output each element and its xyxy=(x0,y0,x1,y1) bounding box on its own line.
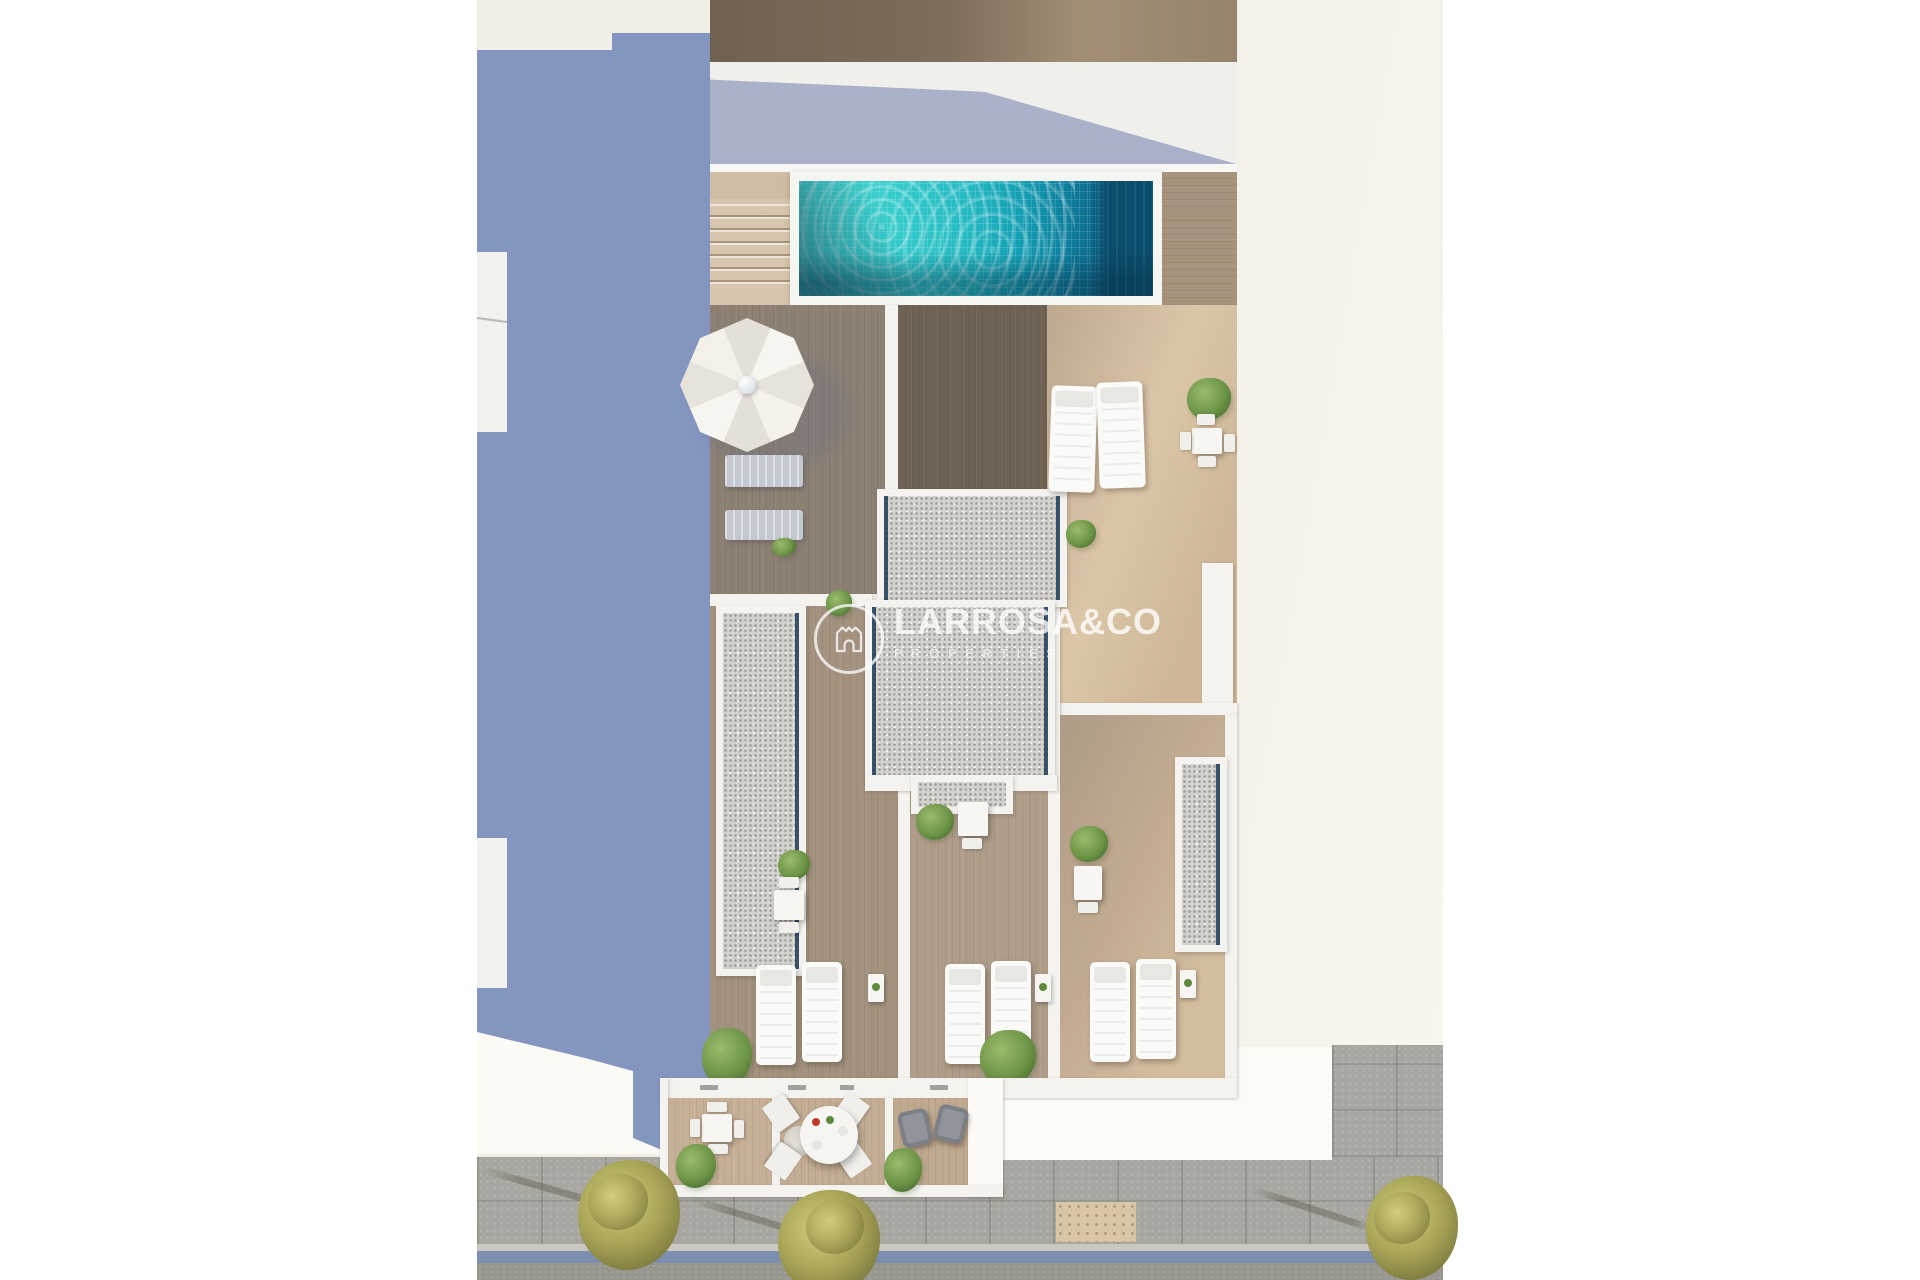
gravel-step-wall xyxy=(1013,775,1057,791)
stair-bulkhead-deck xyxy=(898,305,1047,496)
terrace-sunbed xyxy=(756,965,796,1065)
pool-water xyxy=(799,181,1153,296)
deck-right-planter-wall xyxy=(1202,563,1233,707)
brand-name: LARROSA&CO xyxy=(894,604,1162,640)
terrace-sunbed xyxy=(1136,959,1176,1059)
skylight-glass-edge xyxy=(1216,764,1220,945)
brand-text-block: LARROSA&CO PROPERTIES xyxy=(894,604,1162,661)
adjacent-roof-strip xyxy=(710,0,1237,62)
skylight-strip-left xyxy=(716,606,806,976)
tree-foliage xyxy=(806,1200,864,1254)
south-facade-band xyxy=(660,1078,1237,1098)
deck-dining-table xyxy=(1192,428,1222,454)
brand-tagline: PROPERTIES xyxy=(894,646,1162,661)
skylight-glass-edge xyxy=(884,496,888,600)
tactile-paving xyxy=(1056,1202,1136,1242)
terrace-sunbed xyxy=(802,962,842,1062)
pool-wall-shadow xyxy=(799,181,1153,296)
street-tree xyxy=(778,1190,880,1280)
terrace-sunbed xyxy=(1090,962,1130,1062)
round-dining-table xyxy=(800,1106,858,1164)
facade-vent xyxy=(700,1085,718,1090)
render-canvas: LARROSA&CO PROPERTIES xyxy=(0,0,1920,1280)
pool-surround xyxy=(790,172,1162,305)
facade-vent xyxy=(788,1085,806,1090)
terrace-chair xyxy=(779,922,799,933)
terrace-chair xyxy=(1078,902,1098,913)
terrace-side-table xyxy=(868,974,884,1002)
parasol-finial xyxy=(738,376,756,394)
pool-stairs xyxy=(710,172,790,305)
pool-deck-right xyxy=(1162,172,1237,305)
white-sunbed xyxy=(1096,381,1146,489)
double-lounger xyxy=(725,510,803,540)
lower-chair xyxy=(734,1120,744,1138)
terrace-side-table xyxy=(1035,974,1051,1002)
skylight-glass-edge xyxy=(1056,496,1060,600)
periwinkle-shadow xyxy=(477,33,710,1156)
deck-chair xyxy=(1198,456,1216,467)
table-plate-red xyxy=(812,1118,820,1126)
pool-parapet xyxy=(710,164,1237,172)
gravel-roof-top xyxy=(877,489,1067,607)
terrace-chair xyxy=(962,838,982,849)
facade-vent xyxy=(840,1085,854,1090)
sidewalk-right xyxy=(1332,1045,1443,1157)
deck-chair xyxy=(1180,432,1191,450)
table-plate-green xyxy=(826,1116,834,1124)
terrace-table xyxy=(774,890,804,920)
table-plate xyxy=(838,1126,848,1136)
terrace-chair xyxy=(779,877,799,888)
facade-notch-lower xyxy=(477,838,507,988)
castle-crest-icon xyxy=(829,619,869,659)
facade-vent xyxy=(930,1085,948,1090)
bulkhead-wall xyxy=(885,305,898,496)
tree-foliage xyxy=(1374,1192,1430,1244)
table-plate xyxy=(812,1140,822,1150)
terrace-table xyxy=(1074,866,1102,900)
terrace-sunbed xyxy=(945,964,985,1064)
lower-chair xyxy=(690,1119,700,1137)
tree-foliage xyxy=(588,1174,648,1230)
watermark: LARROSA&CO PROPERTIES xyxy=(814,604,1162,674)
white-sunbed xyxy=(1048,385,1098,493)
terrace-wall-top-right xyxy=(1060,703,1237,715)
brand-logo xyxy=(814,604,884,674)
lower-outer-wall-right xyxy=(968,1078,1003,1197)
double-lounger xyxy=(725,455,803,487)
facade-notch-upper xyxy=(477,252,507,432)
deck-chair xyxy=(1224,434,1235,452)
lower-table xyxy=(702,1114,732,1142)
lower-chair xyxy=(707,1102,727,1112)
terrace-side-table xyxy=(1180,970,1196,998)
terrace-table xyxy=(958,802,988,836)
skylight-strip-right xyxy=(1175,757,1227,952)
gravel-step-wall xyxy=(865,775,911,791)
deck-chair xyxy=(1197,414,1215,425)
